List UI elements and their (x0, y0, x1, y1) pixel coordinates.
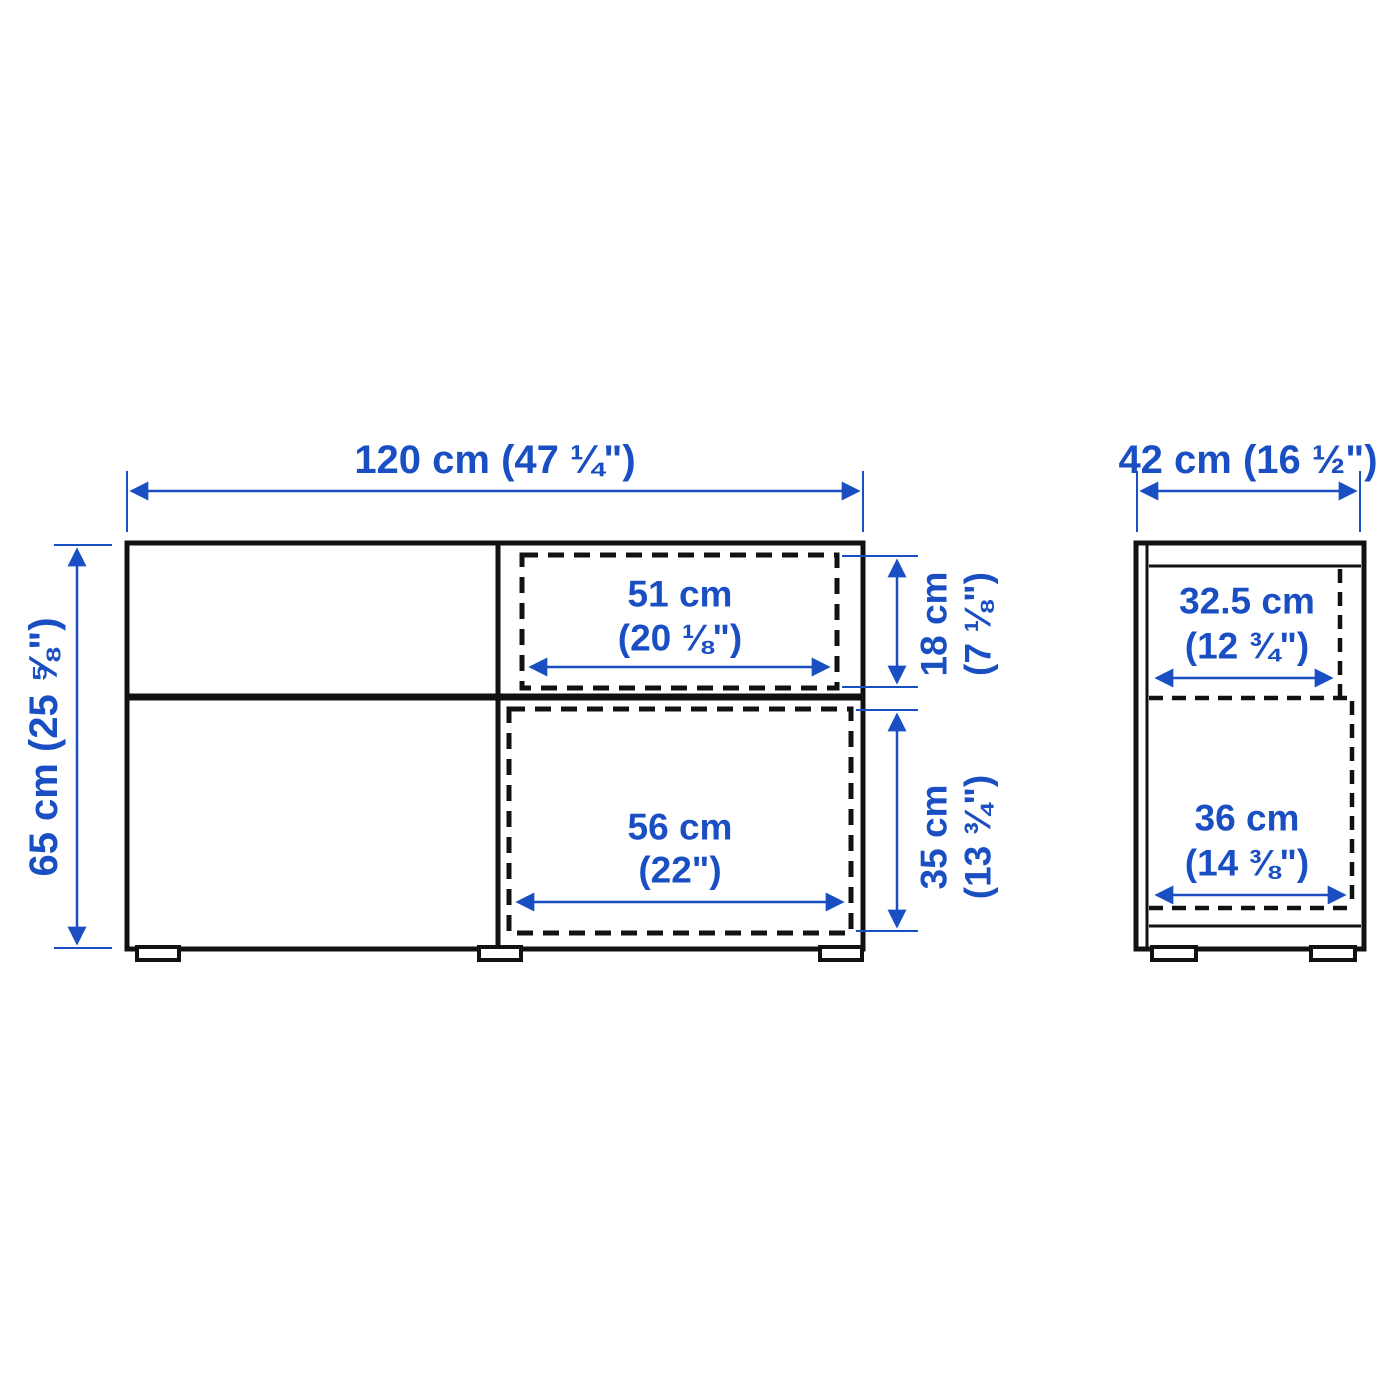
side-upper-opening-label-in: (12 ¾") (1185, 626, 1309, 667)
front-view (127, 543, 863, 960)
door-height-label-in: (13 ¾") (958, 775, 999, 899)
side-depth-label: 42 cm (16 ½") (1118, 438, 1377, 482)
side-foot-right (1311, 947, 1355, 960)
front-height-label: 65 cm (25 ⅝") (22, 617, 66, 876)
front-foot-right (820, 947, 862, 960)
door-width-label-in: (22") (638, 850, 721, 891)
drawer-width-label-cm: 51 cm (628, 574, 733, 615)
diagram-svg: 120 cm (47 ¼") 65 cm (25 ⅝") 51 cm (20 ⅛… (0, 0, 1400, 1400)
front-width-label: 120 cm (47 ¼") (354, 438, 635, 482)
front-width-dimension: 120 cm (47 ¼") (127, 438, 863, 532)
drawer-height-label-cm: 18 cm (914, 572, 955, 677)
side-lower-opening-label-in: (14 ⅜") (1185, 843, 1309, 884)
side-foot-left (1152, 947, 1196, 960)
door-height-label-cm: 35 cm (914, 785, 955, 890)
drawer-width-label-in: (20 ⅛") (618, 618, 742, 659)
front-foot-middle (479, 947, 521, 960)
door-height-dimension: 35 cm (13 ¾") (856, 710, 999, 931)
side-lower-opening-label-cm: 36 cm (1195, 798, 1300, 839)
front-cabinet-outline (127, 543, 863, 949)
front-foot-left (137, 947, 179, 960)
drawer-height-label-in: (7 ⅛") (958, 572, 999, 676)
door-width-label-cm: 56 cm (628, 807, 733, 848)
side-depth-dimension: 42 cm (16 ½") (1118, 438, 1377, 532)
front-height-dimension: 65 cm (25 ⅝") (22, 545, 112, 948)
furniture-dimension-diagram: 120 cm (47 ¼") 65 cm (25 ⅝") 51 cm (20 ⅛… (0, 0, 1400, 1400)
side-upper-opening-label-cm: 32.5 cm (1179, 581, 1315, 622)
